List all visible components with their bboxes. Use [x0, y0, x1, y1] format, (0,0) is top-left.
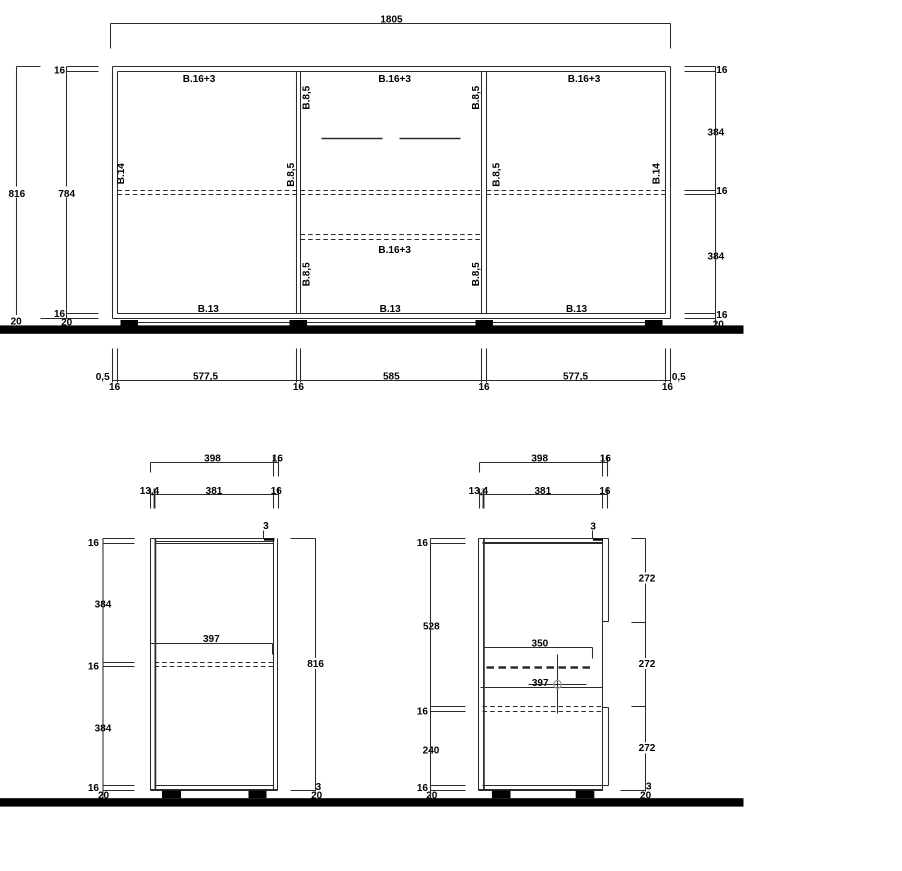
- svg-text:20: 20: [713, 319, 725, 330]
- svg-text:16: 16: [272, 454, 284, 465]
- svg-text:16: 16: [109, 382, 121, 393]
- svg-text:B.8,5: B.8,5: [301, 85, 312, 109]
- svg-text:B.16+3: B.16+3: [378, 245, 411, 256]
- svg-text:3: 3: [263, 521, 269, 532]
- svg-text:272: 272: [639, 574, 656, 585]
- svg-text:B.8,5: B.8,5: [286, 162, 297, 186]
- svg-text:16: 16: [88, 662, 100, 673]
- svg-text:B.8,5: B.8,5: [491, 162, 502, 186]
- svg-text:784: 784: [58, 189, 75, 200]
- svg-text:16: 16: [716, 65, 728, 76]
- svg-text:577,5: 577,5: [563, 372, 588, 383]
- svg-text:B.16+3: B.16+3: [568, 74, 601, 85]
- svg-text:272: 272: [639, 659, 656, 670]
- svg-text:3: 3: [590, 521, 596, 532]
- svg-text:398: 398: [531, 454, 548, 465]
- svg-text:384: 384: [708, 128, 725, 139]
- svg-text:16: 16: [54, 65, 66, 76]
- svg-text:350: 350: [532, 638, 549, 649]
- svg-text:398: 398: [204, 454, 221, 465]
- svg-text:381: 381: [206, 486, 223, 497]
- svg-text:B.13: B.13: [566, 304, 588, 315]
- svg-text:528: 528: [423, 621, 440, 632]
- svg-text:B.16+3: B.16+3: [183, 74, 216, 85]
- svg-text:B.8,5: B.8,5: [471, 85, 482, 109]
- svg-text:816: 816: [8, 189, 25, 200]
- svg-text:16: 16: [716, 186, 728, 197]
- svg-text:0,5: 0,5: [672, 372, 686, 383]
- svg-text:272: 272: [639, 743, 656, 754]
- svg-text:13,4: 13,4: [469, 486, 489, 497]
- svg-text:B.8,5: B.8,5: [301, 262, 312, 286]
- svg-text:397: 397: [532, 678, 549, 689]
- svg-text:240: 240: [423, 745, 440, 756]
- svg-text:16: 16: [293, 382, 305, 393]
- svg-text:381: 381: [534, 486, 551, 497]
- svg-text:16: 16: [478, 382, 490, 393]
- svg-text:B.13: B.13: [380, 304, 402, 315]
- svg-text:16: 16: [417, 707, 429, 718]
- svg-text:816: 816: [307, 659, 324, 670]
- svg-text:13,4: 13,4: [140, 486, 160, 497]
- svg-text:16: 16: [600, 454, 612, 465]
- svg-text:B.13: B.13: [198, 304, 220, 315]
- svg-text:585: 585: [383, 372, 400, 383]
- svg-text:16: 16: [417, 538, 429, 549]
- svg-text:0,5: 0,5: [96, 372, 110, 383]
- svg-text:1805: 1805: [380, 15, 403, 26]
- svg-text:B.8,5: B.8,5: [471, 262, 482, 286]
- svg-text:B.14: B.14: [652, 163, 663, 185]
- svg-text:20: 20: [11, 317, 23, 328]
- svg-text:16: 16: [271, 486, 283, 497]
- svg-text:577,5: 577,5: [193, 372, 218, 383]
- svg-text:397: 397: [203, 634, 220, 645]
- svg-text:384: 384: [708, 252, 725, 263]
- svg-text:B.16+3: B.16+3: [378, 74, 411, 85]
- svg-text:16: 16: [88, 538, 100, 549]
- svg-text:20: 20: [61, 318, 73, 329]
- svg-text:16: 16: [662, 382, 674, 393]
- svg-text:B.14: B.14: [116, 163, 127, 185]
- svg-text:16: 16: [599, 486, 611, 497]
